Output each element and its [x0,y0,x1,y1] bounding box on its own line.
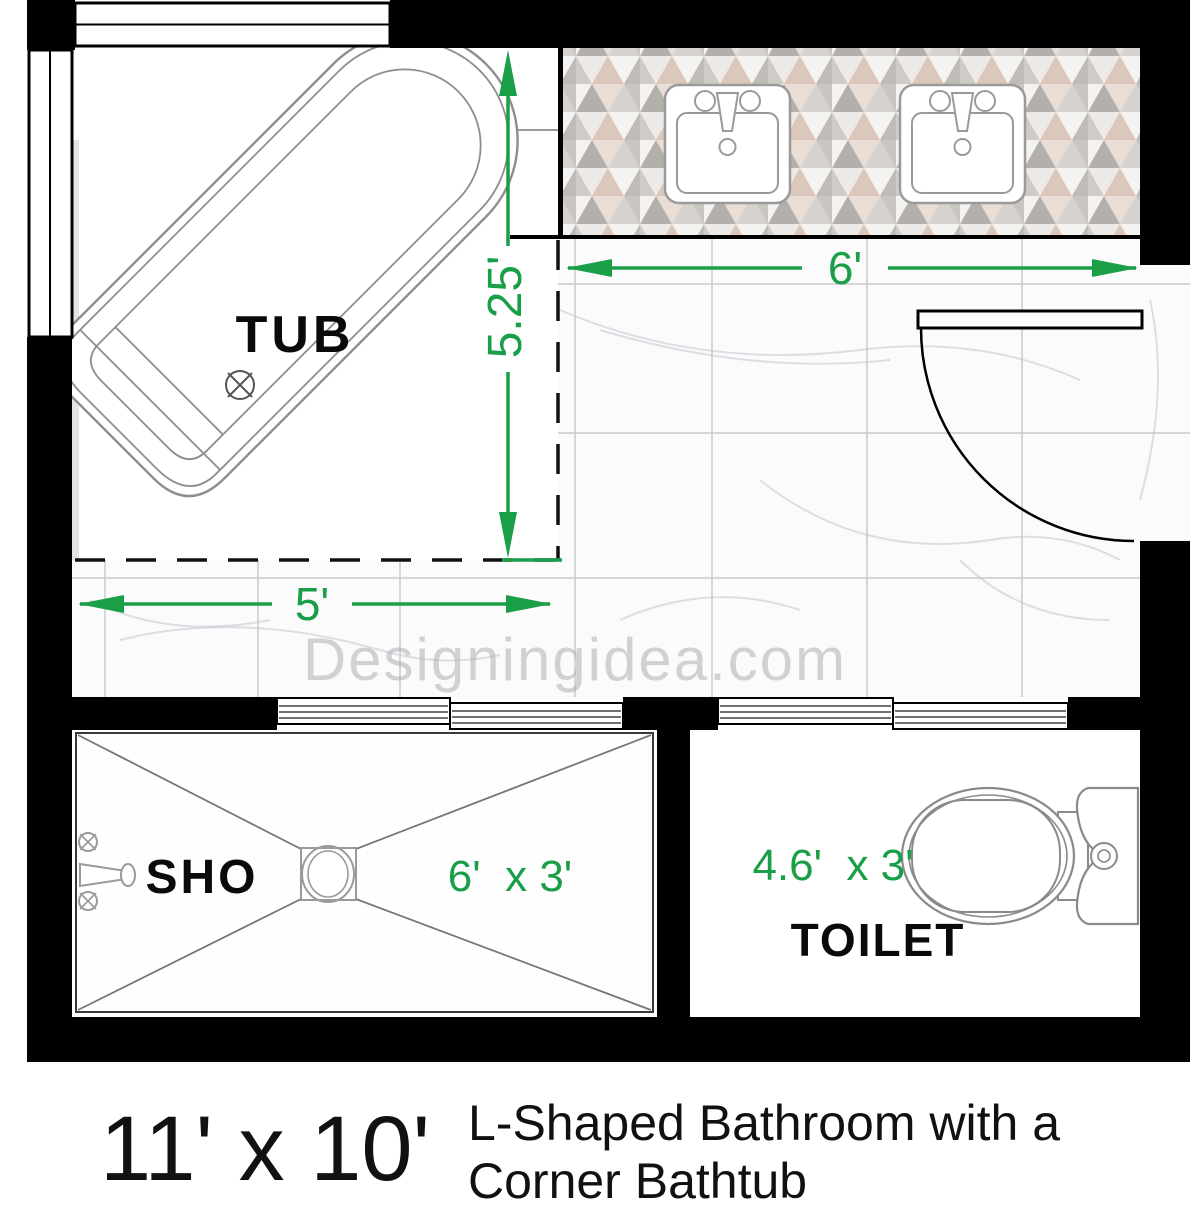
sink-left [665,85,790,203]
faucet-handle-icon [740,91,760,111]
wall-right-lower [1140,541,1190,1062]
faucet-handle-icon [695,91,715,111]
sink-drain-icon [955,139,971,155]
faucet-handle-icon [930,91,950,111]
door-opening-floor [1140,265,1190,541]
wall-top [390,0,1190,48]
vanity-width-label: 6' [828,242,862,294]
tub-depth-label: 5.25' [479,256,532,359]
shower-size-label: 6' x 3' [448,852,572,901]
caption: 11' x 10' L-Shaped Bathroom with a Corne… [100,1095,1060,1209]
toilet-fixture [902,788,1138,924]
toilet-bowl [902,788,1074,924]
vanity-front-edge [510,235,1140,239]
divider-wall [657,697,690,1017]
window-top [75,3,390,46]
toilet-glass-partition [718,698,1068,729]
toilet-size-label: 4.6' x 3' [752,841,913,890]
faucet-handle-icon [975,91,995,111]
shower-room: SHO 6' x 3' [72,730,657,1017]
shower-label: SHO [145,851,258,904]
wall-left [27,337,72,1062]
room-size-text: 11' x 10' [100,1098,430,1200]
floor-plan-drawing: Designingidea.com 6' 5' 5.25' [0,0,1200,1209]
wall-bottom [27,1017,1190,1062]
bathroom-floor-plan-page: Designingidea.com 6' 5' 5.25' [0,0,1200,1209]
watermark-text: Designingidea.com [303,626,847,693]
sink-right [900,85,1025,203]
window-left [29,50,72,337]
tub-width-label: 5' [295,578,329,630]
wall-right-upper [1140,0,1190,265]
wall-top-left-corner [27,0,75,50]
caption-title-line2: Corner Bathtub [468,1153,807,1209]
door-leaf [918,311,1142,328]
toilet-room: 4.6' x 3' TOILET [690,730,1140,1017]
shower-glass-partition [277,698,623,729]
toilet-label: TOILET [791,914,966,966]
vanity-side-wall [558,48,563,238]
tub-label: TUB [236,306,355,364]
sink-drain-icon [720,139,736,155]
vanity-counter [510,48,1140,239]
caption-title-line1: L-Shaped Bathroom with a [468,1095,1060,1151]
